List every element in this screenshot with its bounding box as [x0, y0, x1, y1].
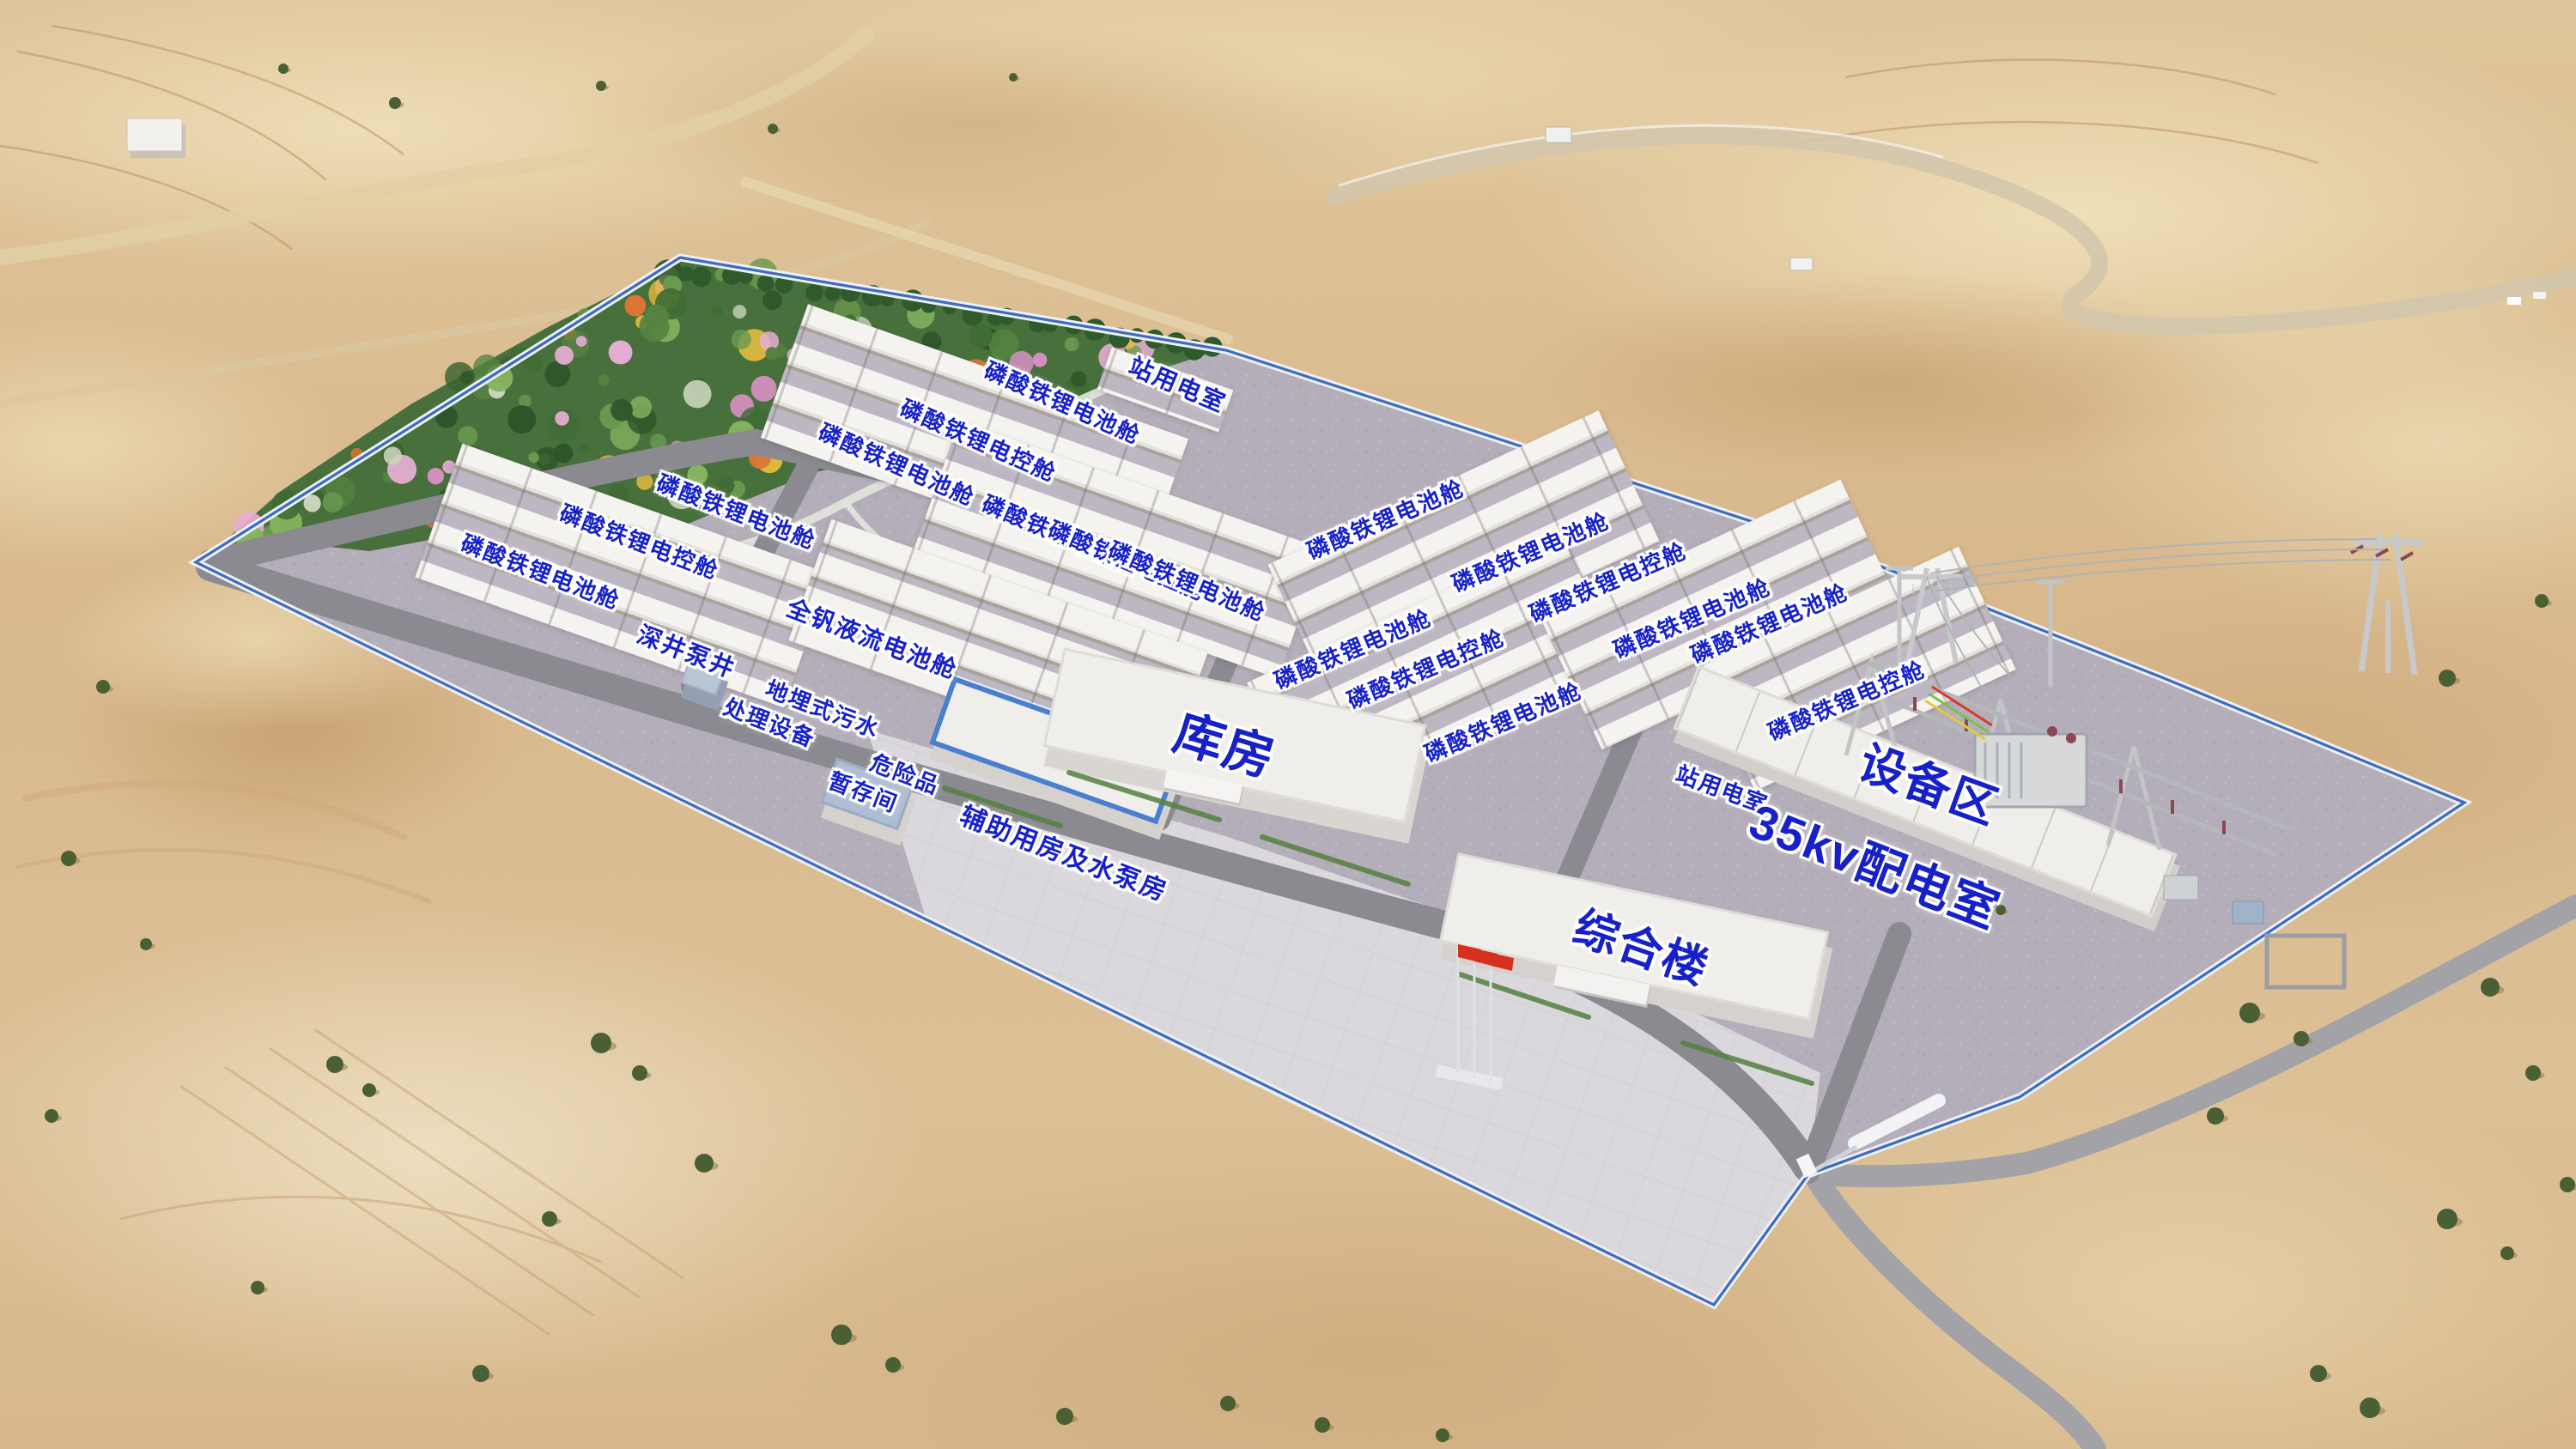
outbuilding	[127, 118, 185, 158]
site-rendering: 磷酸铁锂电池舱磷酸铁锂电控舱磷酸铁锂电池舱磷酸铁锂电池舱磷酸铁锂电控舱磷酸铁锂电…	[0, 0, 2576, 1449]
